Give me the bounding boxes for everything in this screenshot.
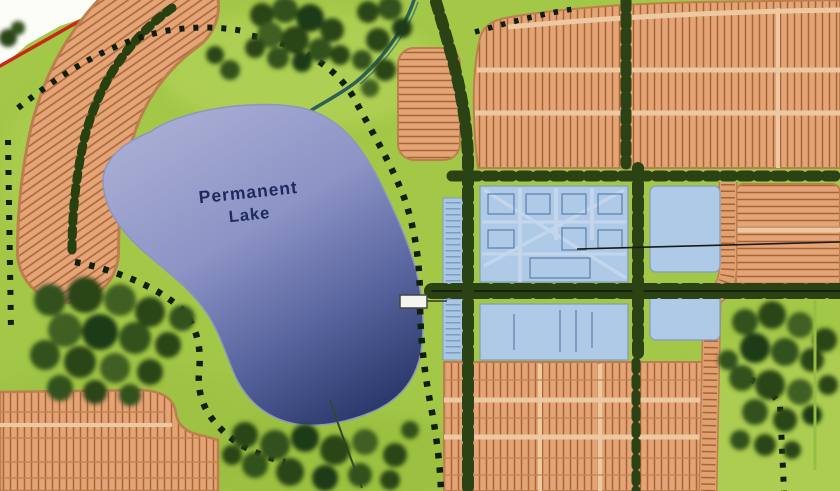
commercial-block-upper-right <box>650 186 720 272</box>
waterfront-promenade <box>443 198 463 360</box>
commercial-block-lower-left <box>480 304 628 360</box>
residential-east-blocks <box>736 184 840 292</box>
residential-south-blocks <box>444 362 712 491</box>
map-canvas: Permanent Lake <box>0 0 840 491</box>
commercial-block-lower-right <box>650 294 720 340</box>
master-plan-map: Permanent Lake <box>0 0 840 491</box>
